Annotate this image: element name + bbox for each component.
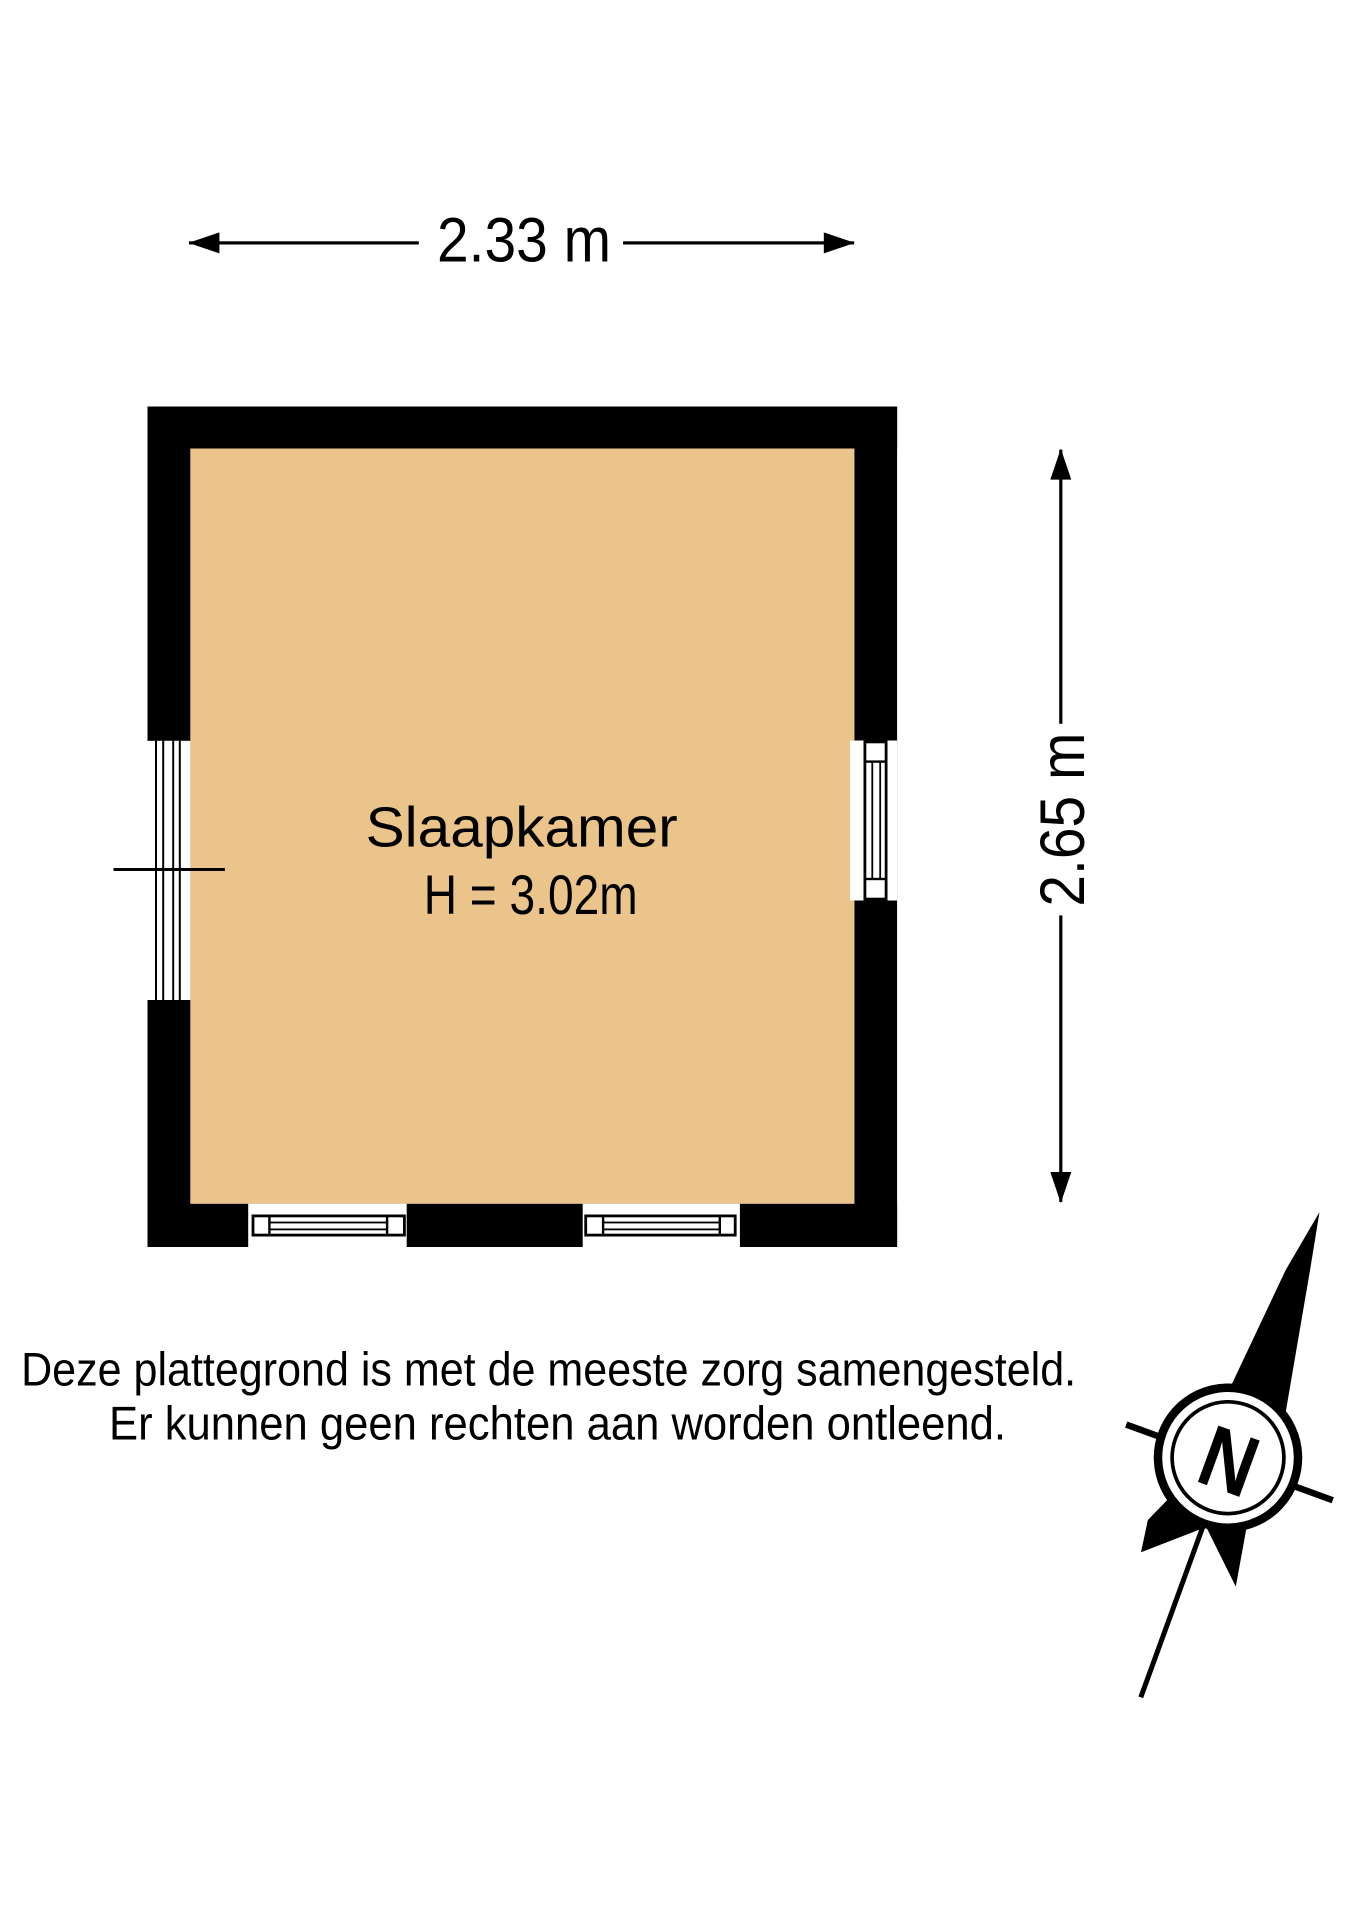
svg-text:H = 3.02m: H = 3.02m — [424, 863, 638, 926]
svg-text:Deze plattegrond is met de mee: Deze plattegrond is met de meeste zorg s… — [21, 1343, 1076, 1396]
svg-text:Slaapkamer: Slaapkamer — [366, 795, 678, 858]
svg-text:Er kunnen geen rechten aan wor: Er kunnen geen rechten aan worden ontlee… — [109, 1397, 1006, 1450]
svg-text:2.33 m: 2.33 m — [437, 206, 611, 276]
svg-text:2.65 m: 2.65 m — [1028, 733, 1098, 907]
